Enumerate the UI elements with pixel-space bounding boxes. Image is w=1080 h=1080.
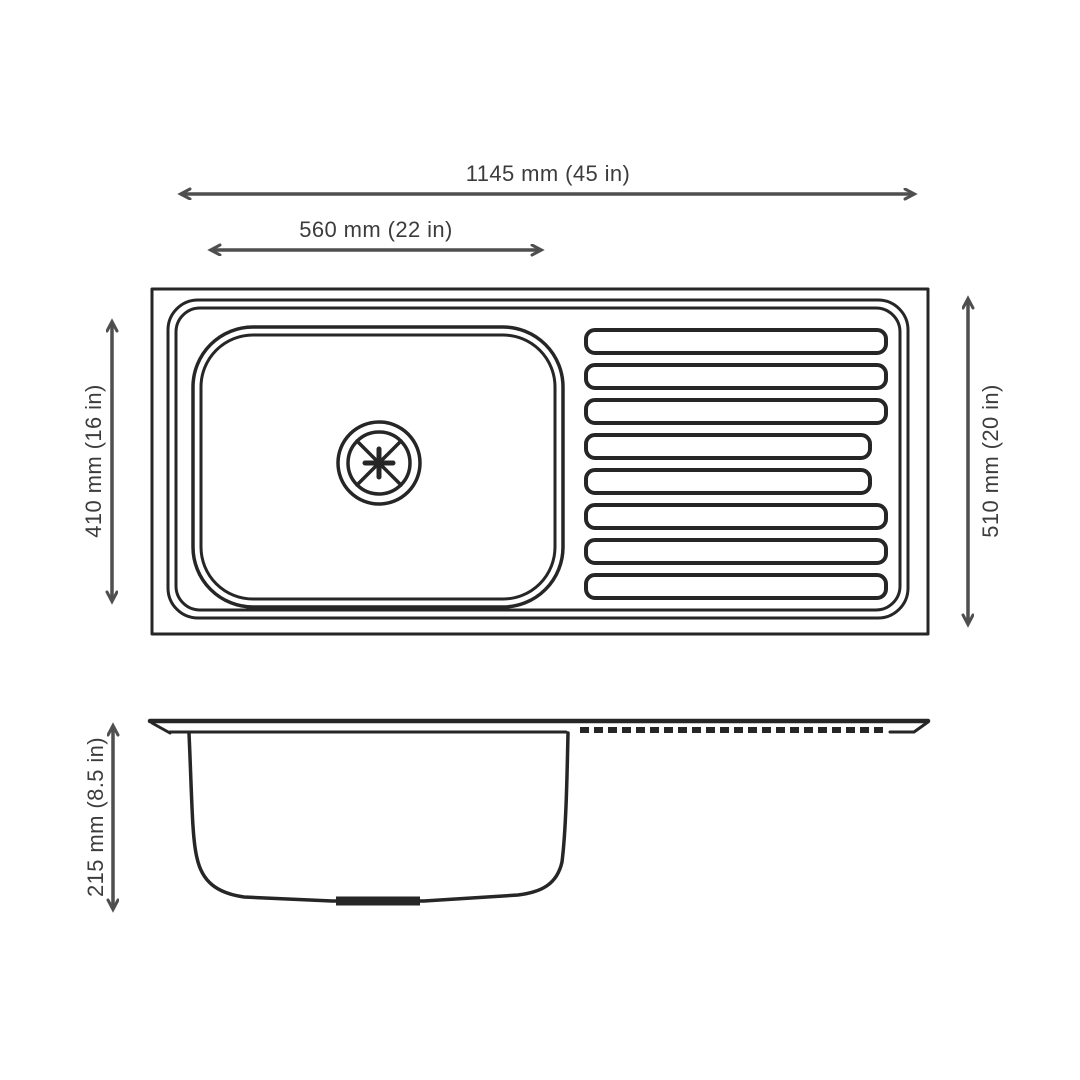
- bowl-depth-label: 215 mm (8.5 in): [83, 737, 109, 897]
- side-view: [150, 721, 928, 901]
- bowl-profile: [189, 733, 568, 901]
- drainboard-slats: [586, 330, 886, 598]
- bowl-front-to-back-label: 410 mm (16 in): [81, 384, 107, 538]
- drainboard-slat: [586, 575, 886, 598]
- overall-front-to-back-label: 510 mm (20 in): [978, 384, 1004, 538]
- drainboard-slat: [586, 470, 870, 493]
- drainboard-slat: [586, 330, 886, 353]
- rim-right-lip: [890, 722, 928, 732]
- top-view: [152, 289, 928, 634]
- sink-dimension-diagram: 1145 mm (45 in) 560 mm (22 in) 410 mm (1…: [0, 0, 1080, 1080]
- bowl-width-label: 560 mm (22 in): [299, 217, 453, 243]
- drainboard-slat: [586, 540, 886, 563]
- drainboard-slat: [586, 435, 870, 458]
- overall-width-label: 1145 mm (45 in): [466, 161, 631, 187]
- drainboard-slat: [586, 400, 886, 423]
- drainboard-slat: [586, 505, 886, 528]
- drainboard-slat: [586, 365, 886, 388]
- rim-left-lip: [152, 723, 170, 733]
- drain-icon: [338, 422, 420, 504]
